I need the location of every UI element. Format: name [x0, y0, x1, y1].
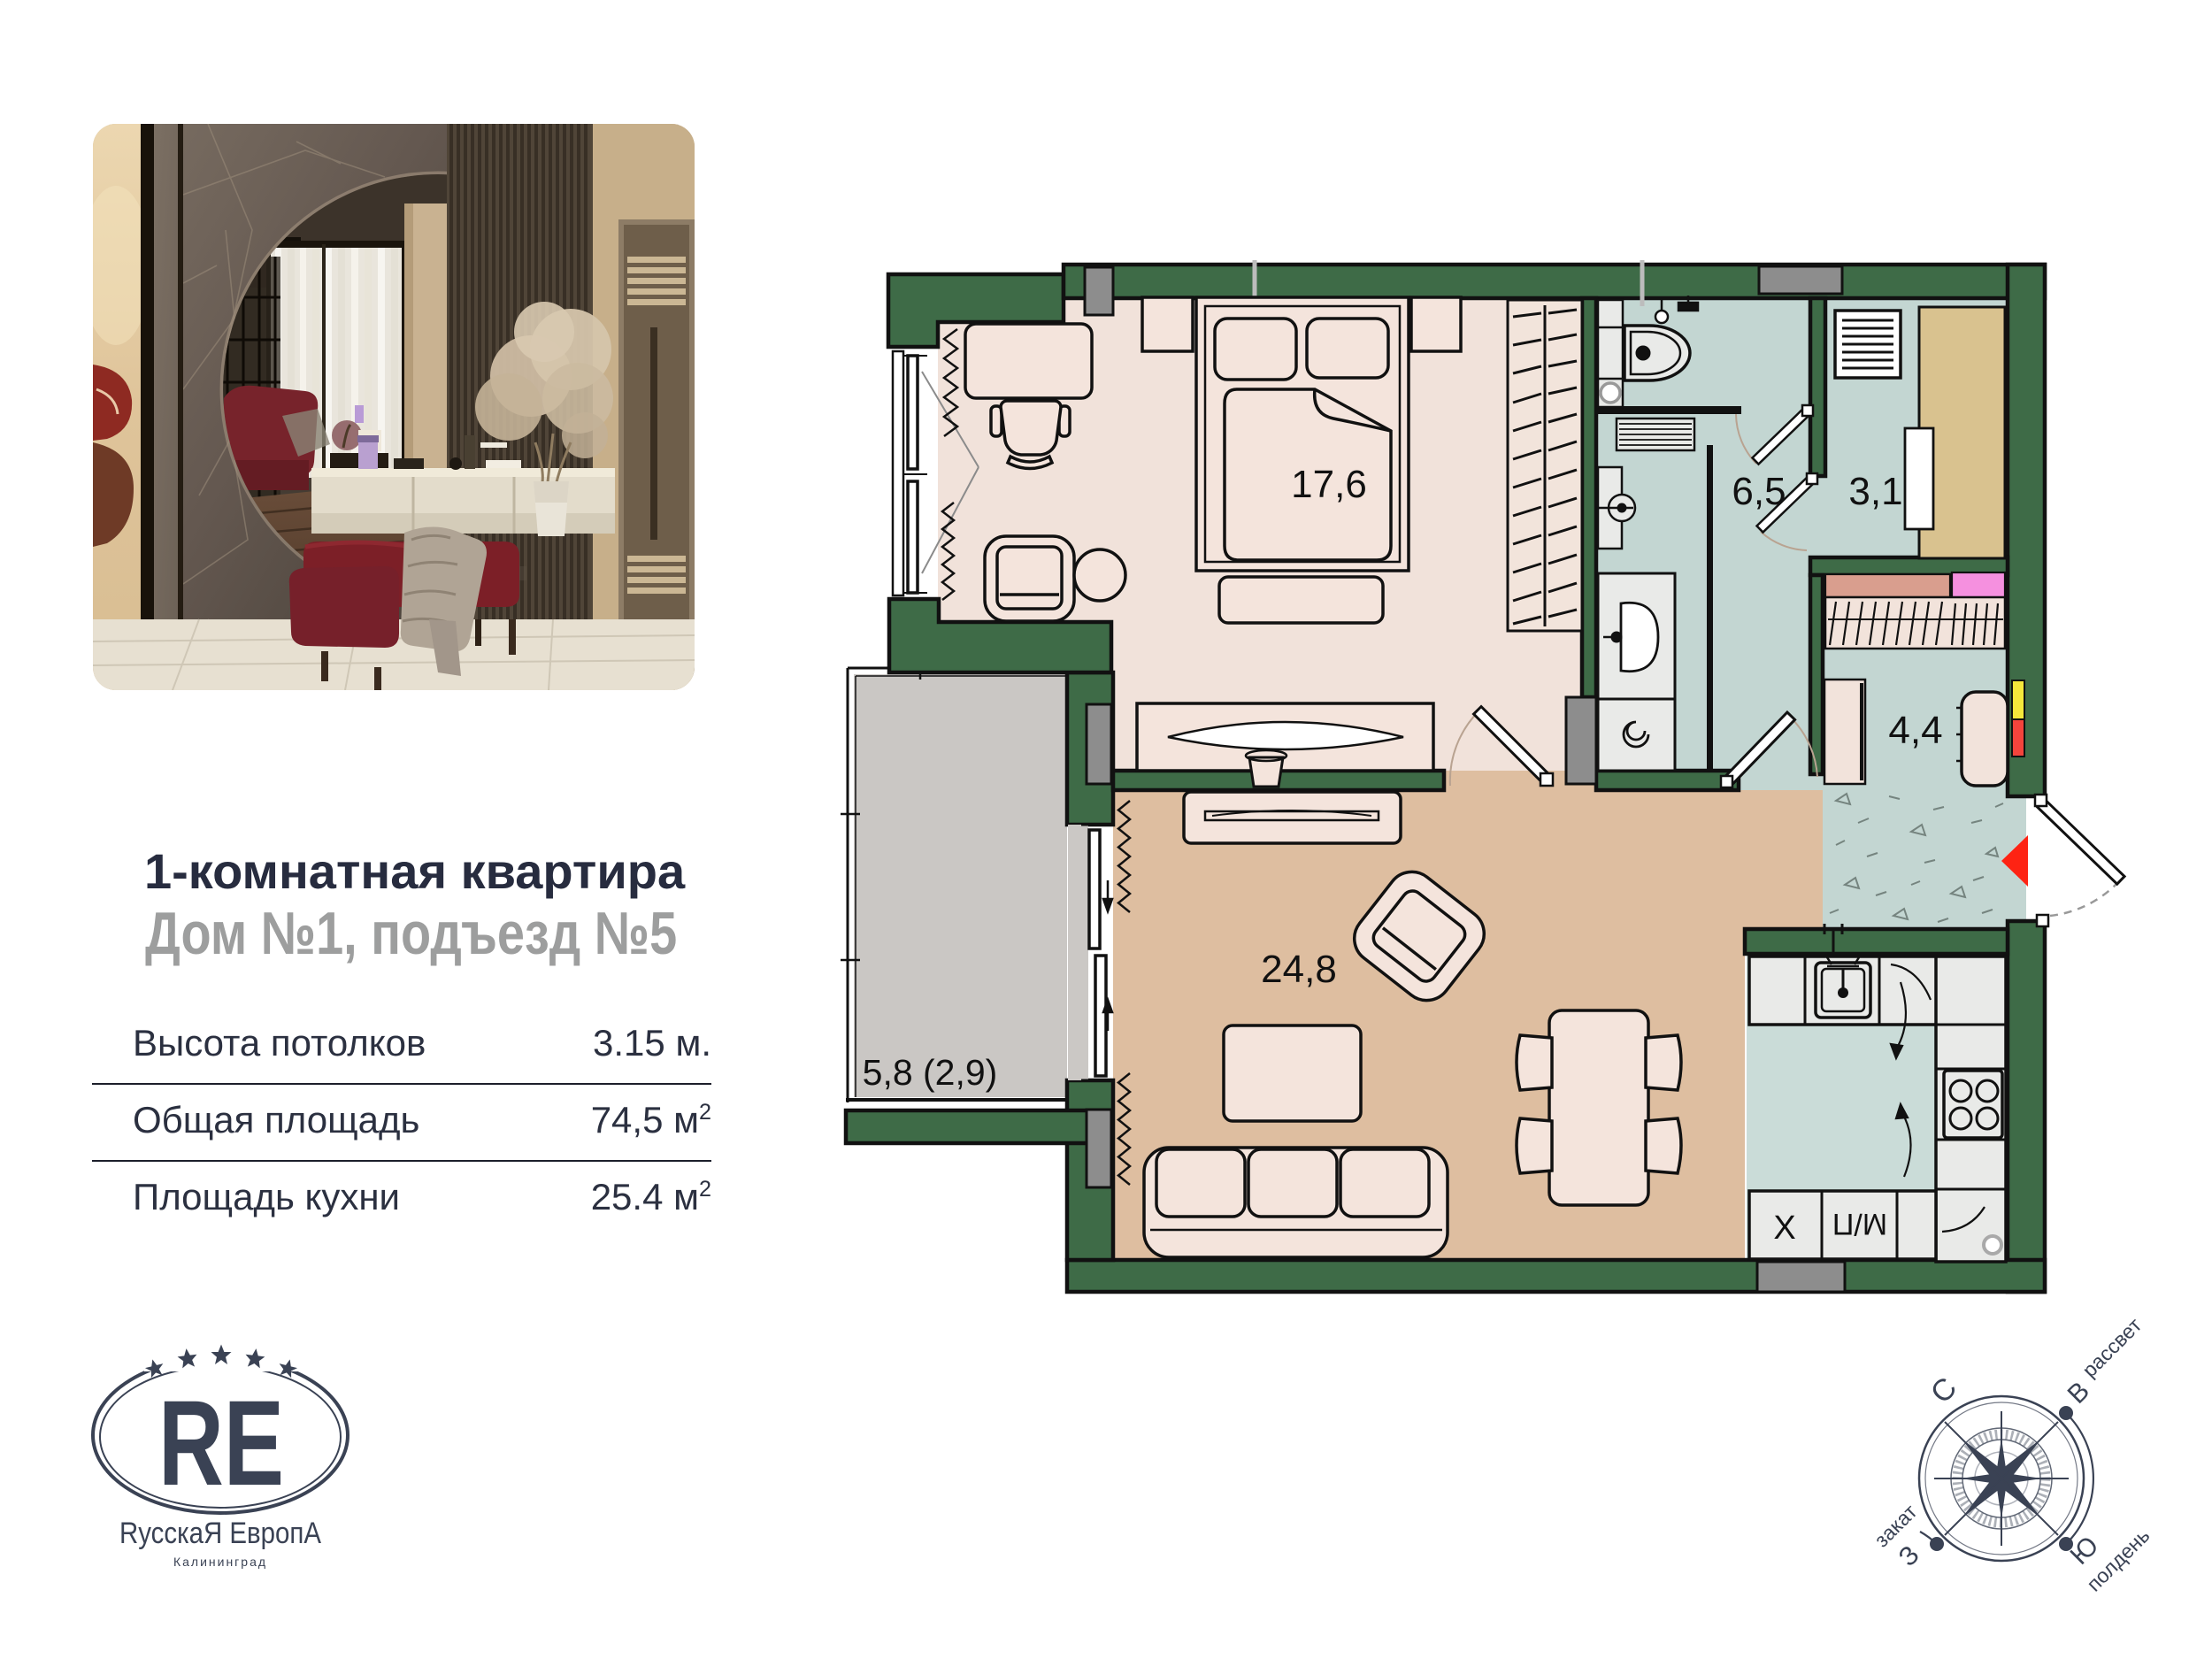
svg-text:RE: RE [158, 1376, 284, 1511]
svg-text:рассвет: рассвет [2078, 1313, 2146, 1381]
svg-text:24,8: 24,8 [1261, 948, 1337, 991]
svg-text:закат: закат [1870, 1500, 1922, 1552]
svg-text:З: З [1893, 1540, 1925, 1572]
svg-text:М/П: М/П [1832, 1207, 1887, 1240]
svg-text:С: С [1924, 1371, 1963, 1409]
svg-text:6,5: 6,5 [1732, 470, 1786, 513]
svg-text:X: X [1773, 1210, 1795, 1247]
svg-text:17,6: 17,6 [1291, 463, 1367, 506]
svg-text:В: В [2062, 1376, 2095, 1409]
svg-text:RусскаЯ ЕвропА: RусскаЯ ЕвропА [119, 1517, 321, 1550]
svg-text:Калининград: Калининград [173, 1555, 267, 1569]
svg-text:3,1: 3,1 [1848, 470, 1902, 513]
svg-text:4,4: 4,4 [1888, 709, 1942, 752]
svg-text:5,8 (2,9): 5,8 (2,9) [863, 1052, 998, 1093]
